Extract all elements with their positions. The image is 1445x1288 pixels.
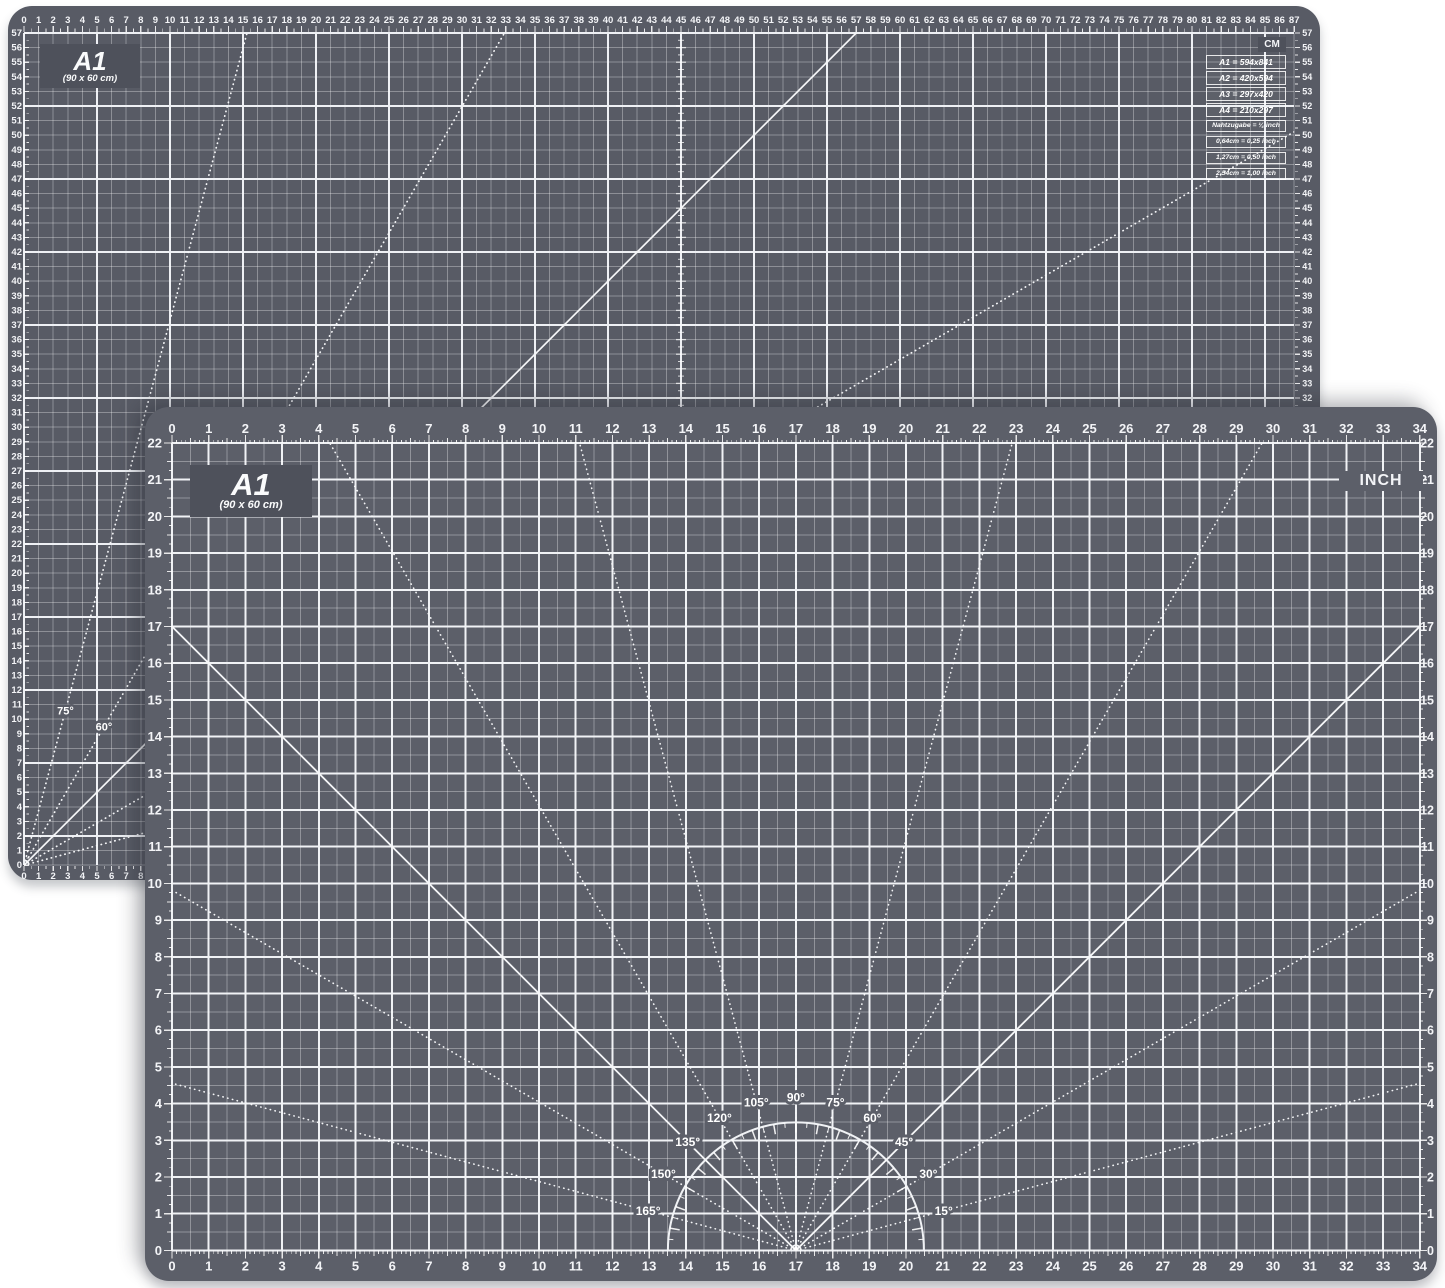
svg-text:39: 39 bbox=[1302, 291, 1312, 301]
svg-text:19: 19 bbox=[148, 546, 162, 561]
svg-text:23: 23 bbox=[355, 15, 366, 26]
svg-text:33: 33 bbox=[501, 15, 512, 26]
svg-text:13: 13 bbox=[642, 1258, 656, 1273]
protractor-angle-label: 75° bbox=[826, 1096, 844, 1110]
svg-text:17: 17 bbox=[789, 421, 803, 436]
svg-text:7: 7 bbox=[124, 15, 129, 26]
svg-text:21: 21 bbox=[935, 421, 949, 436]
svg-text:15: 15 bbox=[148, 692, 162, 707]
svg-text:2: 2 bbox=[17, 831, 22, 842]
svg-text:22: 22 bbox=[972, 1258, 986, 1273]
svg-text:9: 9 bbox=[499, 421, 506, 436]
angle-label: 60° bbox=[96, 722, 113, 734]
svg-text:82: 82 bbox=[1216, 15, 1227, 26]
svg-text:56: 56 bbox=[11, 43, 22, 54]
svg-text:41: 41 bbox=[11, 262, 22, 273]
svg-text:14: 14 bbox=[11, 656, 22, 667]
unit-label-inch: INCH bbox=[1339, 471, 1423, 491]
svg-text:61: 61 bbox=[909, 15, 920, 26]
svg-text:17: 17 bbox=[148, 619, 162, 634]
svg-text:6: 6 bbox=[389, 1258, 396, 1273]
protractor-angle-label: 60° bbox=[863, 1111, 881, 1125]
svg-text:50: 50 bbox=[1302, 130, 1312, 140]
svg-text:53: 53 bbox=[11, 86, 22, 97]
svg-text:22: 22 bbox=[148, 436, 162, 451]
svg-text:32: 32 bbox=[11, 393, 22, 404]
svg-text:48: 48 bbox=[11, 159, 22, 170]
svg-text:10: 10 bbox=[148, 876, 162, 891]
svg-text:48: 48 bbox=[1302, 159, 1312, 169]
svg-text:54: 54 bbox=[1302, 72, 1312, 82]
svg-text:30: 30 bbox=[457, 15, 468, 26]
svg-text:45: 45 bbox=[1302, 203, 1312, 213]
svg-text:5: 5 bbox=[352, 1258, 359, 1273]
svg-text:16: 16 bbox=[148, 656, 162, 671]
svg-text:47: 47 bbox=[11, 174, 22, 185]
svg-text:7: 7 bbox=[17, 758, 22, 769]
svg-text:57: 57 bbox=[11, 28, 22, 39]
svg-text:35: 35 bbox=[530, 15, 541, 26]
svg-text:29: 29 bbox=[1229, 421, 1243, 436]
svg-text:0: 0 bbox=[17, 860, 22, 871]
svg-text:34: 34 bbox=[1413, 1258, 1428, 1273]
svg-text:12: 12 bbox=[605, 421, 619, 436]
angle-line-165 bbox=[145, 836, 796, 1250]
svg-text:7: 7 bbox=[155, 986, 162, 1001]
svg-text:0: 0 bbox=[1427, 1244, 1434, 1258]
svg-text:39: 39 bbox=[588, 15, 599, 26]
protractor-fan bbox=[145, 407, 1437, 1252]
svg-text:3: 3 bbox=[155, 1133, 162, 1148]
svg-text:83: 83 bbox=[1231, 15, 1242, 26]
svg-text:31: 31 bbox=[1302, 421, 1316, 436]
svg-text:21: 21 bbox=[11, 554, 22, 565]
svg-text:10: 10 bbox=[1420, 877, 1434, 891]
svg-text:11: 11 bbox=[148, 839, 162, 854]
svg-text:26: 26 bbox=[11, 481, 22, 492]
svg-text:76: 76 bbox=[1128, 15, 1139, 26]
svg-text:18: 18 bbox=[825, 1258, 839, 1273]
svg-text:53: 53 bbox=[793, 15, 804, 26]
protractor-angle-label: 15° bbox=[935, 1204, 953, 1218]
svg-text:1: 1 bbox=[1427, 1207, 1434, 1221]
svg-text:5: 5 bbox=[155, 1059, 162, 1074]
svg-text:23: 23 bbox=[1009, 421, 1023, 436]
svg-text:24: 24 bbox=[369, 15, 380, 26]
svg-text:14: 14 bbox=[679, 421, 694, 436]
svg-text:13: 13 bbox=[642, 421, 656, 436]
svg-text:72: 72 bbox=[1070, 15, 1081, 26]
svg-text:1: 1 bbox=[17, 846, 23, 857]
svg-text:2: 2 bbox=[51, 15, 56, 26]
protractor-angle-label: 30° bbox=[919, 1167, 937, 1181]
svg-text:38: 38 bbox=[1302, 305, 1312, 315]
svg-text:26: 26 bbox=[1119, 421, 1133, 436]
svg-text:5: 5 bbox=[94, 15, 100, 26]
svg-text:11: 11 bbox=[569, 421, 583, 436]
svg-text:8: 8 bbox=[155, 949, 162, 964]
svg-text:37: 37 bbox=[559, 15, 570, 26]
svg-text:48: 48 bbox=[720, 15, 731, 26]
svg-text:28: 28 bbox=[1192, 1258, 1206, 1273]
svg-text:39: 39 bbox=[11, 291, 22, 302]
svg-text:33: 33 bbox=[1302, 378, 1312, 388]
svg-text:2: 2 bbox=[155, 1170, 162, 1185]
svg-text:54: 54 bbox=[807, 15, 818, 26]
svg-text:8: 8 bbox=[138, 15, 143, 26]
svg-text:20: 20 bbox=[1420, 510, 1434, 524]
svg-text:46: 46 bbox=[1302, 189, 1312, 199]
size-table-row: A3 = 297x420 bbox=[1206, 87, 1286, 101]
svg-text:17: 17 bbox=[11, 612, 22, 623]
svg-text:17: 17 bbox=[267, 15, 278, 26]
svg-text:5: 5 bbox=[352, 421, 359, 436]
svg-text:1: 1 bbox=[155, 1206, 162, 1221]
svg-text:52: 52 bbox=[11, 101, 22, 112]
svg-text:6: 6 bbox=[109, 15, 114, 26]
svg-text:51: 51 bbox=[763, 15, 774, 26]
svg-text:41: 41 bbox=[1302, 262, 1312, 272]
svg-text:15: 15 bbox=[1420, 693, 1434, 707]
svg-text:84: 84 bbox=[1245, 15, 1256, 26]
svg-text:6: 6 bbox=[109, 871, 114, 880]
svg-text:4: 4 bbox=[80, 871, 86, 880]
svg-text:14: 14 bbox=[1420, 730, 1434, 744]
svg-text:20: 20 bbox=[148, 509, 162, 524]
svg-text:11: 11 bbox=[569, 1258, 583, 1273]
angle-line-30 bbox=[796, 450, 1437, 1250]
svg-text:19: 19 bbox=[862, 421, 876, 436]
svg-text:42: 42 bbox=[11, 247, 22, 258]
svg-text:73: 73 bbox=[1085, 15, 1096, 26]
svg-text:0: 0 bbox=[21, 15, 26, 26]
svg-text:51: 51 bbox=[1302, 116, 1312, 126]
svg-text:0: 0 bbox=[168, 1258, 175, 1273]
svg-text:33: 33 bbox=[1376, 1258, 1390, 1273]
svg-text:20: 20 bbox=[899, 1258, 913, 1273]
svg-text:56: 56 bbox=[1302, 43, 1312, 53]
svg-text:1: 1 bbox=[205, 1258, 212, 1273]
svg-text:6: 6 bbox=[389, 421, 396, 436]
svg-text:59: 59 bbox=[880, 15, 891, 26]
svg-text:55: 55 bbox=[1302, 57, 1312, 67]
svg-text:1: 1 bbox=[36, 871, 42, 880]
protractor-angle-label: 90° bbox=[787, 1090, 805, 1104]
svg-text:32: 32 bbox=[1302, 393, 1312, 403]
svg-text:4: 4 bbox=[17, 802, 23, 813]
svg-text:15: 15 bbox=[715, 421, 729, 436]
svg-text:46: 46 bbox=[11, 189, 22, 200]
size-label-box-cm: A1 (90 x 60 cm) bbox=[40, 44, 140, 88]
conversion-table-row: Nahtzugabe = ¼ inch bbox=[1206, 120, 1286, 132]
svg-text:35: 35 bbox=[1302, 349, 1312, 359]
svg-text:38: 38 bbox=[11, 305, 22, 316]
svg-text:33: 33 bbox=[1376, 421, 1390, 436]
svg-text:62: 62 bbox=[924, 15, 935, 26]
size-table-row: A4 = 210x297 bbox=[1206, 103, 1286, 117]
svg-text:3: 3 bbox=[278, 421, 285, 436]
svg-text:12: 12 bbox=[194, 15, 205, 26]
svg-text:74: 74 bbox=[1099, 15, 1110, 26]
svg-text:26: 26 bbox=[1119, 1258, 1133, 1273]
svg-text:12: 12 bbox=[605, 1258, 619, 1273]
svg-text:18: 18 bbox=[11, 597, 22, 608]
svg-text:87: 87 bbox=[1289, 15, 1300, 26]
svg-text:85: 85 bbox=[1260, 15, 1271, 26]
svg-text:7: 7 bbox=[425, 421, 432, 436]
protractor-angle-label: 135° bbox=[675, 1135, 700, 1149]
unit-label-cm: CM bbox=[1258, 37, 1286, 52]
svg-text:52: 52 bbox=[1302, 101, 1312, 111]
svg-text:18: 18 bbox=[825, 421, 839, 436]
svg-text:78: 78 bbox=[1158, 15, 1169, 26]
protractor-angle-label: 150° bbox=[651, 1167, 676, 1181]
svg-text:3: 3 bbox=[17, 816, 22, 827]
svg-text:22: 22 bbox=[340, 15, 351, 26]
angle-line-15 bbox=[796, 836, 1437, 1250]
svg-text:26: 26 bbox=[398, 15, 409, 26]
svg-text:1: 1 bbox=[205, 421, 212, 436]
svg-text:21: 21 bbox=[935, 1258, 949, 1273]
conversion-table-row: 1,27cm = 0,50 inch bbox=[1206, 152, 1286, 164]
svg-text:27: 27 bbox=[11, 466, 22, 477]
svg-text:19: 19 bbox=[862, 1258, 876, 1273]
mat-size-title: A1 bbox=[231, 470, 271, 499]
svg-text:8: 8 bbox=[462, 1258, 469, 1273]
svg-text:25: 25 bbox=[1082, 1258, 1096, 1273]
svg-text:14: 14 bbox=[223, 15, 234, 26]
svg-text:50: 50 bbox=[11, 130, 22, 141]
svg-text:32: 32 bbox=[486, 15, 497, 26]
size-label-box-inch: A1 (90 x 60 cm) bbox=[190, 465, 312, 517]
svg-text:11: 11 bbox=[1421, 840, 1434, 854]
svg-text:18: 18 bbox=[148, 582, 162, 597]
svg-text:63: 63 bbox=[939, 15, 950, 26]
svg-text:36: 36 bbox=[11, 335, 22, 346]
svg-text:28: 28 bbox=[11, 451, 22, 462]
svg-text:2: 2 bbox=[51, 871, 56, 880]
svg-text:0: 0 bbox=[168, 421, 175, 436]
svg-text:54: 54 bbox=[11, 72, 22, 83]
svg-text:60: 60 bbox=[895, 15, 906, 26]
protractor-angle-label: 120° bbox=[707, 1111, 732, 1125]
svg-text:21: 21 bbox=[148, 472, 162, 487]
svg-text:7: 7 bbox=[124, 871, 129, 880]
angle-line-150 bbox=[145, 450, 796, 1250]
svg-text:77: 77 bbox=[1143, 15, 1154, 26]
svg-text:53: 53 bbox=[1302, 86, 1312, 96]
svg-text:24: 24 bbox=[1046, 1258, 1061, 1273]
angle-label: 75° bbox=[57, 706, 74, 718]
svg-text:0: 0 bbox=[21, 871, 26, 880]
svg-text:10: 10 bbox=[11, 714, 22, 725]
svg-text:45: 45 bbox=[11, 203, 22, 214]
svg-text:57: 57 bbox=[851, 15, 862, 26]
svg-text:38: 38 bbox=[574, 15, 585, 26]
svg-text:7: 7 bbox=[425, 1258, 432, 1273]
svg-text:16: 16 bbox=[752, 1258, 766, 1273]
svg-text:40: 40 bbox=[11, 276, 22, 287]
svg-text:13: 13 bbox=[209, 15, 220, 26]
svg-text:28: 28 bbox=[1192, 421, 1206, 436]
svg-text:8: 8 bbox=[138, 871, 143, 880]
svg-text:13: 13 bbox=[148, 766, 162, 781]
svg-text:17: 17 bbox=[789, 1258, 803, 1273]
svg-text:24: 24 bbox=[11, 510, 22, 521]
svg-text:47: 47 bbox=[705, 15, 716, 26]
svg-text:10: 10 bbox=[165, 15, 176, 26]
svg-text:4: 4 bbox=[1427, 1097, 1434, 1111]
svg-text:4: 4 bbox=[80, 15, 86, 26]
svg-text:15: 15 bbox=[715, 1258, 729, 1273]
svg-text:50: 50 bbox=[749, 15, 760, 26]
svg-text:31: 31 bbox=[471, 15, 482, 26]
svg-text:35: 35 bbox=[11, 349, 22, 360]
svg-text:34: 34 bbox=[1413, 421, 1428, 436]
mat-dimensions-label: (90 x 60 cm) bbox=[220, 499, 283, 512]
svg-text:71: 71 bbox=[1055, 15, 1066, 26]
svg-text:17: 17 bbox=[1420, 620, 1434, 634]
svg-text:75: 75 bbox=[1114, 15, 1125, 26]
size-table-row: A2 = 420x594 bbox=[1206, 71, 1286, 85]
inch-grid-canvas: 15°30°45°60°75°90°105°120°135°150°165°00… bbox=[145, 407, 1437, 1281]
svg-text:34: 34 bbox=[11, 364, 22, 375]
svg-text:25: 25 bbox=[11, 495, 22, 506]
svg-text:14: 14 bbox=[148, 729, 163, 744]
svg-text:24: 24 bbox=[1046, 421, 1061, 436]
svg-text:9: 9 bbox=[155, 913, 162, 928]
conversion-table-row: 2,54cm = 1,00 inch bbox=[1206, 168, 1286, 180]
svg-text:9: 9 bbox=[153, 15, 158, 26]
svg-text:56: 56 bbox=[836, 15, 847, 26]
svg-text:12: 12 bbox=[1420, 804, 1434, 818]
svg-text:9: 9 bbox=[17, 729, 22, 740]
svg-text:8: 8 bbox=[17, 743, 22, 754]
svg-text:52: 52 bbox=[778, 15, 789, 26]
svg-text:57: 57 bbox=[1302, 28, 1312, 38]
svg-text:5: 5 bbox=[94, 871, 100, 880]
svg-text:16: 16 bbox=[252, 15, 263, 26]
svg-text:10: 10 bbox=[532, 421, 546, 436]
svg-text:36: 36 bbox=[544, 15, 555, 26]
svg-text:19: 19 bbox=[1420, 547, 1434, 561]
svg-text:67: 67 bbox=[997, 15, 1008, 26]
svg-text:49: 49 bbox=[734, 15, 745, 26]
svg-text:7: 7 bbox=[1427, 987, 1434, 1001]
svg-text:43: 43 bbox=[647, 15, 658, 26]
svg-text:33: 33 bbox=[11, 378, 22, 389]
svg-text:30: 30 bbox=[1266, 421, 1280, 436]
svg-text:18: 18 bbox=[1420, 583, 1434, 597]
svg-text:80: 80 bbox=[1187, 15, 1198, 26]
svg-text:79: 79 bbox=[1172, 15, 1183, 26]
protractor-angle-label: 105° bbox=[744, 1096, 769, 1110]
svg-text:32: 32 bbox=[1339, 421, 1353, 436]
svg-text:5: 5 bbox=[1427, 1060, 1434, 1074]
svg-text:41: 41 bbox=[617, 15, 628, 26]
svg-text:22: 22 bbox=[11, 539, 22, 550]
svg-text:11: 11 bbox=[12, 700, 23, 711]
svg-text:16: 16 bbox=[11, 627, 22, 638]
svg-text:4: 4 bbox=[155, 1096, 163, 1111]
svg-text:11: 11 bbox=[180, 15, 191, 26]
svg-text:30: 30 bbox=[1266, 1258, 1280, 1273]
svg-text:55: 55 bbox=[822, 15, 833, 26]
svg-text:25: 25 bbox=[1082, 421, 1096, 436]
svg-text:31: 31 bbox=[11, 408, 22, 419]
svg-text:6: 6 bbox=[1427, 1024, 1434, 1038]
svg-text:15: 15 bbox=[11, 641, 22, 652]
svg-text:1: 1 bbox=[36, 15, 42, 26]
svg-text:3: 3 bbox=[1427, 1134, 1434, 1148]
svg-text:9: 9 bbox=[499, 1258, 506, 1273]
svg-text:10: 10 bbox=[532, 1258, 546, 1273]
svg-text:34: 34 bbox=[515, 15, 526, 26]
svg-text:22: 22 bbox=[1420, 437, 1434, 451]
svg-text:64: 64 bbox=[953, 15, 964, 26]
svg-text:3: 3 bbox=[65, 15, 70, 26]
svg-text:5: 5 bbox=[17, 787, 23, 798]
protractor-angle-label: 45° bbox=[895, 1135, 913, 1149]
svg-text:43: 43 bbox=[11, 232, 22, 243]
svg-text:30: 30 bbox=[11, 422, 22, 433]
cutting-mat-front-inch-side: 15°30°45°60°75°90°105°120°135°150°165°00… bbox=[145, 407, 1437, 1281]
svg-text:44: 44 bbox=[11, 218, 22, 229]
svg-text:66: 66 bbox=[982, 15, 993, 26]
svg-text:42: 42 bbox=[1302, 247, 1312, 257]
protractor-angle-label: 165° bbox=[636, 1204, 661, 1218]
svg-text:37: 37 bbox=[11, 320, 22, 331]
svg-text:55: 55 bbox=[11, 57, 22, 68]
svg-text:47: 47 bbox=[1302, 174, 1312, 184]
svg-text:49: 49 bbox=[1302, 145, 1312, 155]
svg-text:8: 8 bbox=[1427, 950, 1434, 964]
svg-text:27: 27 bbox=[1156, 421, 1170, 436]
svg-text:16: 16 bbox=[1420, 657, 1434, 671]
svg-text:8: 8 bbox=[462, 421, 469, 436]
svg-text:23: 23 bbox=[1009, 1258, 1023, 1273]
svg-text:3: 3 bbox=[278, 1258, 285, 1273]
svg-text:3: 3 bbox=[65, 871, 70, 880]
svg-text:22: 22 bbox=[972, 421, 986, 436]
svg-text:34: 34 bbox=[1302, 364, 1312, 374]
svg-text:32: 32 bbox=[1339, 1258, 1353, 1273]
svg-text:20: 20 bbox=[899, 421, 913, 436]
svg-text:4: 4 bbox=[315, 421, 323, 436]
svg-text:19: 19 bbox=[296, 15, 307, 26]
svg-text:43: 43 bbox=[1302, 232, 1312, 242]
svg-text:6: 6 bbox=[155, 1023, 162, 1038]
paper-size-table: A1 = 594x841A2 = 420x594A3 = 297x420A4 =… bbox=[1206, 55, 1286, 184]
svg-text:21: 21 bbox=[325, 15, 336, 26]
svg-text:23: 23 bbox=[11, 524, 22, 535]
conversion-table-row: 0,64cm = 0,25 inch bbox=[1206, 136, 1286, 148]
svg-text:9: 9 bbox=[1427, 914, 1434, 928]
svg-text:42: 42 bbox=[632, 15, 643, 26]
svg-text:16: 16 bbox=[752, 421, 766, 436]
svg-text:70: 70 bbox=[1041, 15, 1052, 26]
svg-text:36: 36 bbox=[1302, 335, 1312, 345]
svg-text:25: 25 bbox=[384, 15, 395, 26]
svg-text:51: 51 bbox=[11, 116, 22, 127]
svg-text:40: 40 bbox=[603, 15, 614, 26]
svg-text:20: 20 bbox=[311, 15, 322, 26]
svg-text:29: 29 bbox=[11, 437, 22, 448]
svg-text:40: 40 bbox=[1302, 276, 1312, 286]
svg-text:27: 27 bbox=[413, 15, 424, 26]
svg-text:68: 68 bbox=[1012, 15, 1023, 26]
size-table-row: A1 = 594x841 bbox=[1206, 55, 1286, 69]
